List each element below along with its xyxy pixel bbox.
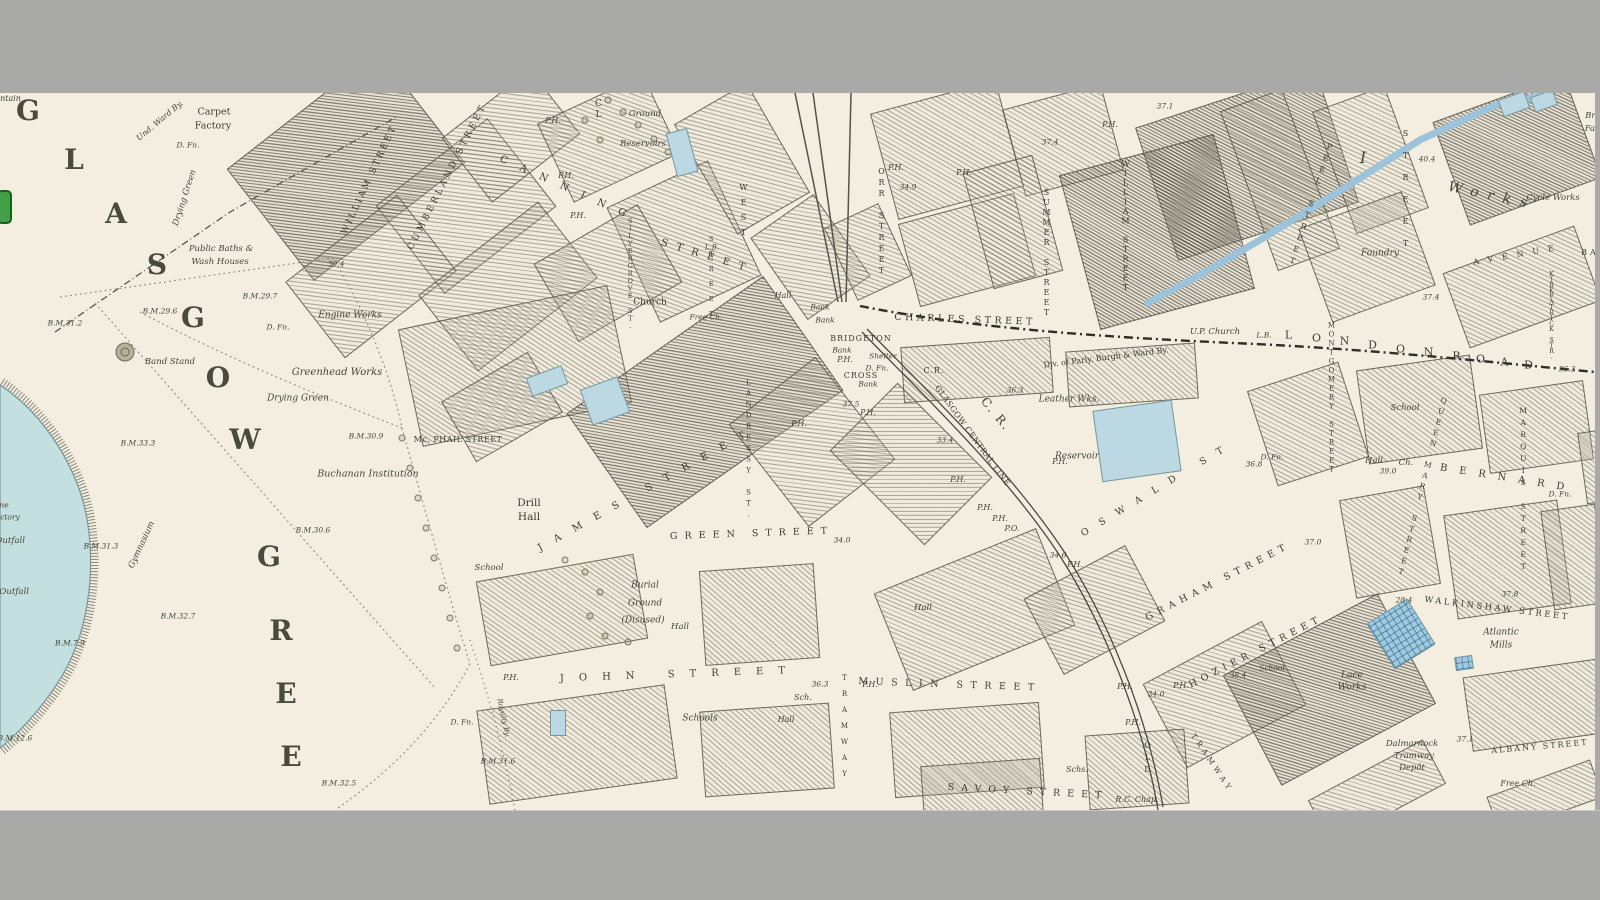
map-label: Ground: [629, 110, 661, 119]
map-label: 40.4: [1419, 155, 1436, 163]
map-label: 37.0: [1305, 538, 1322, 546]
map-label: 37.1: [1157, 102, 1174, 110]
map-label: Sewage Outfall: [0, 537, 25, 546]
map-viewer: GLASGOWGREEFountainnectorySewage Outfall…: [0, 0, 1600, 900]
map-label: 36.3: [1007, 386, 1024, 394]
map-label: B.M.31.6: [481, 757, 516, 765]
map-label: Schools: [682, 715, 717, 724]
building-block: [476, 684, 677, 805]
tree: [447, 615, 453, 621]
map-label: U.P. Church: [1190, 328, 1240, 337]
tree: [423, 525, 429, 531]
map-label: Factory: [195, 121, 231, 131]
band-stand: [121, 348, 129, 356]
map-label: Reservoirs: [620, 140, 666, 149]
map-label: 36.8: [1246, 460, 1263, 468]
map-label: Mc. PHAIL STREET: [414, 436, 503, 444]
map-label: Bank: [810, 303, 829, 311]
map-label: Band Stand: [145, 358, 195, 367]
map-label: ne: [0, 501, 9, 509]
map-label: R: [269, 617, 292, 645]
map-label: O: [206, 364, 230, 392]
pond: [550, 710, 566, 736]
map-label: TRAMWAY: [841, 674, 848, 786]
map-label: G: [257, 543, 281, 571]
map-label: P.H.: [950, 476, 966, 484]
map-label: P.H.: [791, 420, 807, 428]
map-label: 36.3: [812, 680, 829, 688]
building-block: [1247, 362, 1369, 487]
map-label: Public Baths &: [189, 245, 253, 254]
map-label: P.H.: [992, 515, 1008, 523]
map-label: Atlantic: [1483, 629, 1519, 638]
map-label: P.H.: [545, 117, 561, 125]
building-block: [1479, 380, 1594, 474]
building-block: [1462, 657, 1595, 751]
map-label: P.H.: [1052, 458, 1068, 466]
river-bank: [0, 385, 91, 748]
map-label: 34.9: [900, 183, 917, 191]
map-label: Bank: [858, 380, 877, 388]
map-label: Free Ch.: [1500, 780, 1535, 788]
map-label: R.C. Chap.: [1115, 796, 1158, 804]
map-label: 34.0: [834, 536, 851, 544]
map-label: I: [1360, 150, 1366, 166]
map-label: P.H.: [1102, 121, 1118, 129]
map-label: CHARLES STREET: [894, 313, 1036, 327]
map-label: Engine Works: [318, 312, 381, 321]
map-label: O: [1476, 354, 1488, 365]
map-label: ctory: [0, 513, 20, 521]
map-label: D. Fn.: [1549, 490, 1572, 498]
map-label: JOHN STREET: [560, 666, 800, 684]
map-label: Hall: [518, 512, 540, 523]
map-label: Sch.: [794, 694, 812, 702]
map-label: 34.6: [1050, 551, 1067, 559]
map-label: L: [64, 146, 84, 174]
map-label: Drill: [517, 498, 541, 509]
map-label: Church: [633, 299, 667, 308]
tree: [454, 645, 460, 651]
map-label: D: [1368, 340, 1380, 351]
map-label: GRAHAM STREET: [1144, 541, 1292, 623]
map-label: B.M.31.3: [84, 542, 119, 550]
map-label: B.M.33.3: [121, 439, 156, 447]
map-label: P.H.: [888, 164, 904, 172]
map-label: 37.8: [1502, 590, 1519, 598]
map-label: P.H.: [1125, 719, 1141, 727]
map-label: Sewage Outfall: [0, 588, 29, 597]
tree: [415, 495, 421, 501]
map-label: MONTGOMERY STREET: [1328, 322, 1335, 475]
map-label: D. Fn.: [1261, 453, 1284, 461]
map-label: SILVERGROVE ST.: [627, 217, 634, 330]
map-label: B.M.31.2: [48, 319, 83, 327]
map-label: CL: [594, 99, 603, 121]
map-label: MUSLIN STREET: [858, 677, 1042, 693]
map-label: Shelter: [869, 352, 897, 360]
map-label: BRIDGETON: [830, 335, 892, 343]
map-label: P.H.: [570, 212, 586, 220]
map-label: D: [1524, 360, 1536, 371]
map-label: 33.4: [937, 436, 954, 444]
map-label: Bank: [815, 316, 834, 324]
map-label: P.H.: [860, 409, 876, 417]
map-label: R: [1452, 351, 1463, 362]
map-label: B.M.32.7: [161, 612, 196, 620]
map-label: Cycle Works: [1526, 194, 1579, 203]
building-block: [699, 703, 835, 798]
map-canvas[interactable]: GLASGOWGREEFountainnectorySewage Outfall…: [0, 93, 1595, 810]
tree: [562, 557, 568, 563]
map-label: D. Fn.: [267, 323, 290, 331]
map-label: Depôt: [1399, 764, 1425, 773]
river-clyde: [0, 385, 91, 748]
map-label: Und. Ward By.: [135, 99, 184, 142]
map-label: School: [474, 564, 503, 573]
map-label: 28.4: [1396, 596, 1413, 604]
map-label: O: [1312, 333, 1324, 344]
map-label: Wash Houses: [191, 258, 248, 267]
map-label: Works: [1338, 684, 1366, 693]
map-label: 36.3: [1559, 365, 1576, 373]
map-label: W: [229, 426, 260, 454]
map-label: P.H.: [977, 504, 993, 512]
map-label: Hall: [671, 623, 689, 632]
map-label: Fountain: [0, 95, 21, 103]
map-label: 37.5: [843, 400, 860, 408]
map-label: B.M.7.9: [55, 639, 85, 647]
map-label: B.M.29.7: [243, 292, 278, 300]
map-label: Mills: [1490, 642, 1512, 651]
building-block: [1577, 428, 1595, 505]
band-stand: [116, 343, 134, 361]
reservoir: [1092, 400, 1181, 482]
tree: [439, 585, 445, 591]
map-label: Foundry: [1361, 250, 1399, 259]
map-label: L.B.: [1256, 331, 1271, 339]
map-label: MARQUIS STREET: [1519, 406, 1527, 574]
map-label: Buchanan Institution: [317, 469, 418, 479]
map-label: Hall: [1365, 457, 1383, 466]
map-label: S: [147, 251, 167, 279]
map-label: SUMMER STREET: [1042, 188, 1050, 318]
letterbox-bottom: [0, 810, 1600, 900]
map-label: KIRKPATRICK STR.: [1548, 271, 1554, 359]
map-label: C.R.: [924, 367, 945, 375]
map-label: 39.0: [1380, 467, 1397, 475]
map-label: Lace: [1341, 672, 1363, 681]
map-label: LANDRESSY ST.: [745, 379, 752, 522]
map-label: B.M.30.9: [349, 432, 384, 440]
map-label: Carpet: [198, 107, 231, 117]
map-label: Gymnasium: [127, 520, 156, 570]
map-label: 37.4: [1042, 138, 1059, 146]
building-block: [699, 563, 820, 666]
map-label: Drying Green: [267, 395, 329, 404]
map-label: P.H.: [1067, 561, 1083, 569]
map-label: Free Ch.: [689, 313, 722, 321]
map-label: Tramway: [1394, 752, 1434, 761]
map-label: WEST: [739, 183, 747, 243]
map-label: WILLIAM STREET: [1121, 160, 1129, 293]
map-label: G: [181, 304, 205, 332]
map-label: 30.4: [328, 260, 345, 268]
map-label: B.M.29.6: [143, 307, 178, 315]
map-label: Burial: [631, 582, 659, 591]
building-block: [1443, 225, 1595, 348]
map-sidebar-toggle-button[interactable]: [0, 190, 12, 224]
map-label: O: [1396, 344, 1408, 355]
map-label: B.M.32.5: [322, 779, 357, 787]
map-label: Bank: [832, 346, 851, 354]
map-label: N: [1424, 347, 1437, 358]
map-label: C. R.: [979, 395, 1013, 433]
map-label: OLD: [1143, 741, 1151, 777]
map-label: E: [280, 743, 301, 771]
map-label: BA: [1581, 249, 1595, 257]
map-label: Leather Wks.: [1039, 396, 1100, 405]
park-path: [338, 664, 470, 808]
letterbox-right: [1595, 93, 1600, 810]
map-label: Hall: [775, 292, 792, 300]
map-label: Dalmarnock: [1386, 740, 1438, 749]
map-label: Greenhead Works: [292, 368, 383, 378]
map-label: 37.4: [1423, 293, 1440, 301]
park-path: [402, 428, 470, 664]
map-label: ORR STREET: [877, 167, 885, 277]
map-label: P.H.: [503, 674, 519, 682]
map-label: P.H.: [558, 172, 574, 180]
map-label: Factory: [1585, 125, 1595, 134]
map-label: P.H.: [1173, 682, 1189, 690]
map-label: P.H.: [837, 356, 853, 364]
map-label: Schs.: [1066, 766, 1088, 774]
map-label: STREET: [1401, 129, 1409, 261]
glasshouse-building: [1454, 655, 1474, 671]
map-label: Hall: [914, 604, 932, 613]
map-label: L: [1285, 330, 1295, 341]
map-label: A: [1501, 357, 1512, 368]
map-label: D. Fn.: [177, 141, 200, 149]
map-label: Ch.: [1399, 459, 1414, 468]
map-label: A: [105, 200, 127, 228]
map-label: P.H.: [1117, 683, 1133, 691]
map-label: P.O.: [1005, 525, 1020, 533]
map-label: (Disused): [621, 617, 664, 626]
tree: [431, 555, 437, 561]
letterbox-top: [0, 0, 1600, 93]
map-label: GREEN STREET: [670, 526, 834, 541]
map-label: N: [1340, 336, 1353, 347]
map-label: Drying Green: [172, 169, 198, 227]
map-label: B.M.12.6: [0, 734, 32, 742]
map-label: 38.4: [1230, 671, 1247, 679]
map-label: Brook: [1585, 112, 1595, 121]
map-label: P.H.: [956, 169, 972, 177]
map-label: 34.0: [1148, 690, 1165, 698]
map-label: B.M.30.6: [296, 526, 331, 534]
map-label: 37.1: [1457, 735, 1474, 743]
map-label: School: [1390, 404, 1419, 413]
map-label: Ground: [628, 600, 662, 609]
map-label: School: [1259, 664, 1285, 672]
map-label: Hall: [778, 716, 795, 724]
map-label: E: [275, 680, 296, 708]
map-label: D. Fn.: [451, 718, 474, 726]
map-label: L.B.: [705, 245, 719, 252]
building-block: [1339, 485, 1441, 598]
tree: [399, 435, 405, 441]
